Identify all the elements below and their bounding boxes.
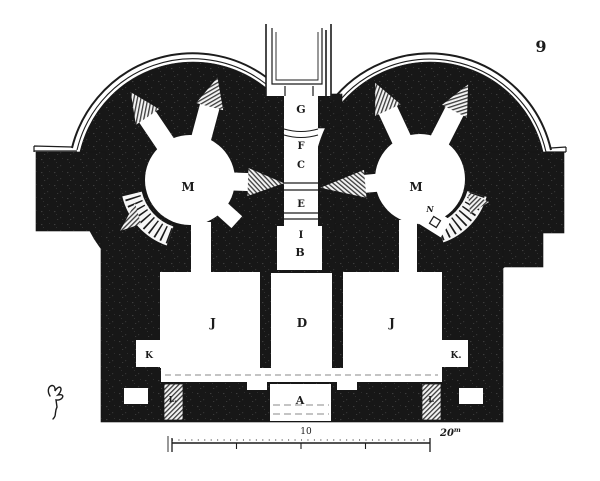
left-wing-mass [36,152,106,231]
label-k-left: K [145,351,154,361]
scale-unit-superscript: m [454,426,461,434]
passage-left-rotunda [191,222,211,274]
label-i: I [299,230,304,241]
label-f: F [297,141,304,152]
label-e: E [297,199,305,210]
floor-plan-figure: G F C E I B D A J J K K. L. L M M N 9 10… [0,0,600,481]
passage-right-rotunda [399,220,417,274]
socle-right [459,388,483,404]
label-j-left: J [209,316,216,330]
label-j-right: J [388,316,395,330]
label-g: G [296,103,305,116]
label-a: A [295,394,305,407]
corridor-void [284,96,318,248]
socle-left [124,388,148,404]
entrance-spandrel-left [262,94,286,128]
label-d: D [297,316,307,330]
label-l-right: L [428,394,434,404]
notch-right [337,382,357,390]
figure-number: 9 [535,37,546,56]
label-n: N [425,204,434,214]
notch-left [247,382,267,390]
label-k-right: K. [451,351,462,361]
label-m-left: M [181,180,194,194]
label-b: B [295,246,304,259]
label-c: C [297,160,305,171]
engraving-page: G F C E I B D A J J K K. L. L M M N 9 10… [0,0,600,481]
label-m-right: M [409,180,422,194]
scale-mid-label: 10 [300,427,312,437]
right-step-mass [503,233,543,267]
label-l-left: L. [169,394,178,404]
